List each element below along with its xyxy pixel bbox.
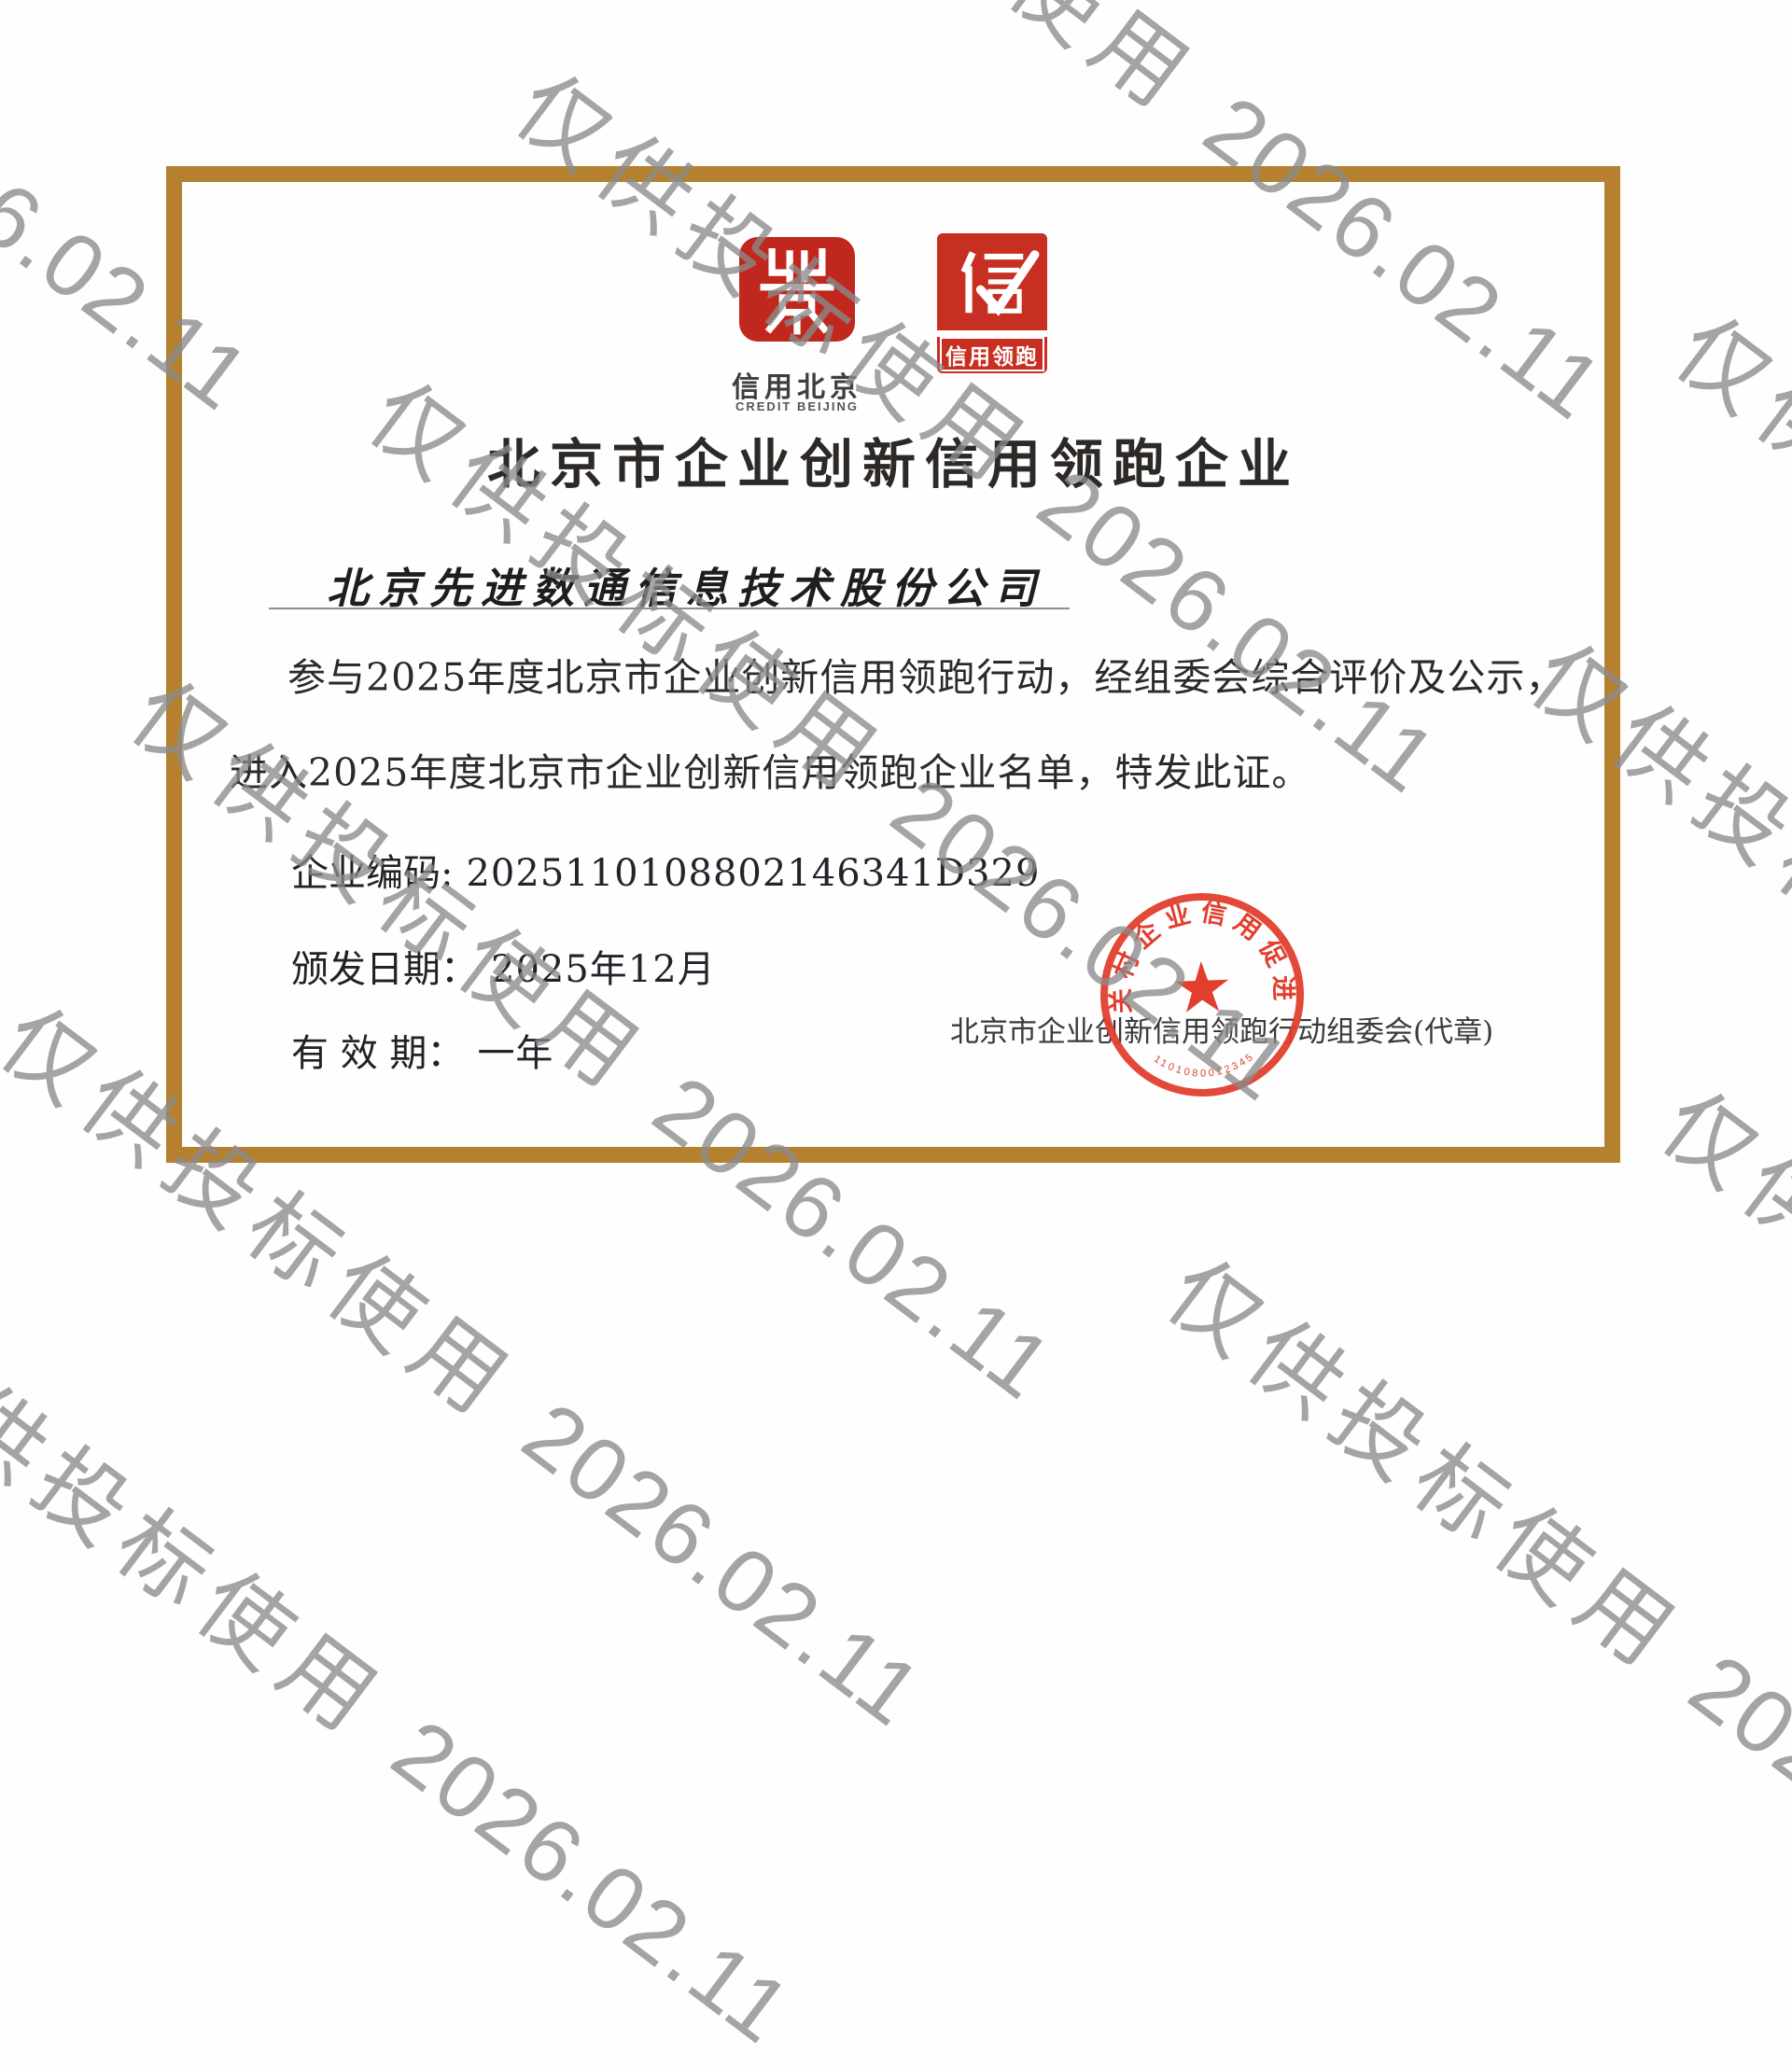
validity-value: 一年: [477, 1032, 553, 1075]
seal-serial-number: 1101080012345: [1152, 1050, 1258, 1081]
credit-leading-logo-icon: 信用领跑: [937, 233, 1047, 373]
certificate-title: 北京市企业创新信用领跑企业: [182, 422, 1605, 498]
credit-beijing-logo-icon: [739, 237, 855, 342]
watermark: 仅供投标使用2026.02.11: [1144, 1223, 1792, 2003]
certificate-page: { "watermark": { "label": "仅供投标使用", "sta…: [0, 0, 1792, 1346]
enterprise-code-value: 2025110108802146341D329: [466, 852, 1040, 895]
credit-leading-band-label: 信用领跑: [940, 337, 1044, 371]
body-line-2: 进入2025年度北京市企业创新信用领跑企业名单，特发此证。: [230, 741, 1310, 797]
logo-divider: [937, 330, 1047, 337]
svg-text:1101080012345: 1101080012345: [1152, 1050, 1258, 1081]
official-seal: 中关村企业信用促进会 1101080012345: [1086, 879, 1318, 1111]
validity-label: 有 效 期：: [291, 1032, 464, 1075]
watermark: 仅供投标使用2026.02.11: [1639, 1055, 1792, 1835]
enterprise-code-row: 企业编码:2025110108802146341D329: [291, 843, 1040, 897]
watermark: 仅供投标使用2026.02.11: [1653, 280, 1792, 1060]
credit-leading-glyph-icon: [937, 233, 1047, 330]
company-name: 北京先进数通信息技术股份公司: [327, 554, 1045, 615]
watermark: 仅供投标使用2026.02.11: [0, 1288, 824, 2068]
credit-beijing-caption-en: CREDIT BEIJING: [718, 399, 876, 413]
enterprise-code-label: 企业编码:: [291, 852, 453, 895]
body-line-1: 参与2025年度北京市企业创新信用领跑行动，经组委会综合评价及公示，: [287, 646, 1564, 702]
seal-star-icon: [1174, 960, 1229, 1013]
validity-row: 有 效 期：一年: [291, 1023, 553, 1077]
issue-date-value: 2025年12月: [491, 948, 716, 991]
watermark: 仅供投标使用2026.02.11: [0, 0, 40, 687]
issue-date-row: 颁发日期：2025年12月: [291, 939, 716, 993]
issue-date-label: 颁发日期：: [291, 948, 478, 991]
credit-beijing-glyph-icon: [739, 237, 855, 342]
company-underline: [269, 608, 1070, 609]
